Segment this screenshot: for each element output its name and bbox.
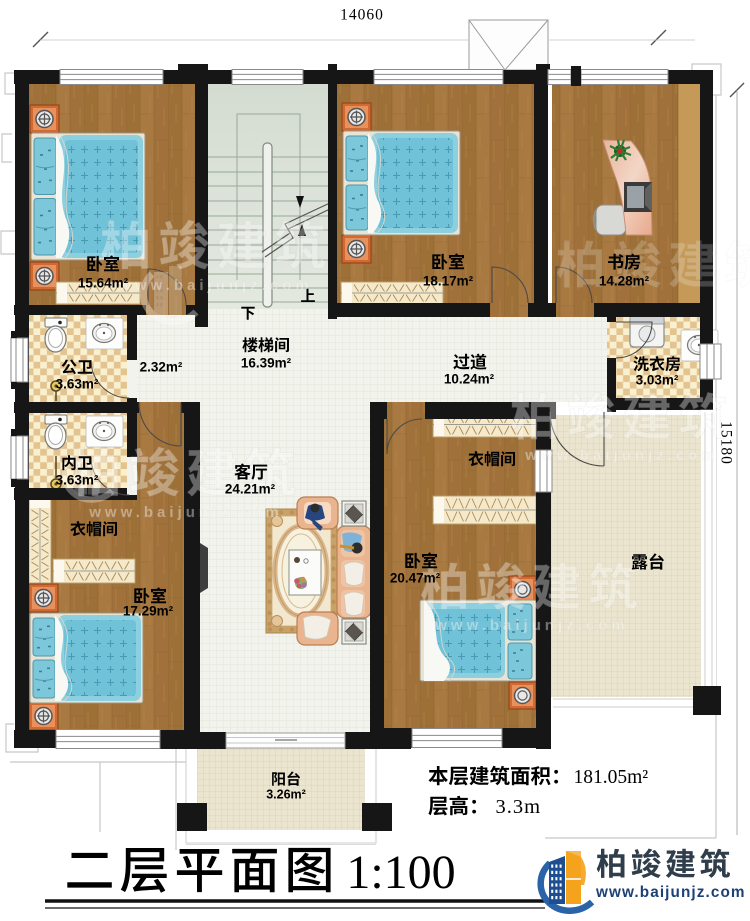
svg-text:3.3m: 3.3m: [496, 796, 542, 818]
svg-text:16.39m²: 16.39m²: [241, 356, 292, 371]
svg-text:17.29m²: 17.29m²: [123, 604, 174, 619]
svg-text:www.baijunjz.com: www.baijunjz.com: [88, 504, 282, 521]
svg-text:www.baijunjz.com: www.baijunjz.com: [118, 277, 312, 294]
svg-text:3.63m²: 3.63m²: [56, 377, 99, 392]
svg-text:18.17m²: 18.17m²: [423, 274, 474, 289]
svg-text:3.03m²: 3.03m²: [636, 373, 679, 388]
svg-text:2.32m²: 2.32m²: [140, 360, 183, 375]
svg-text:3.63m²: 3.63m²: [56, 473, 99, 488]
svg-text:14060: 14060: [340, 6, 384, 23]
svg-text:3.26m²: 3.26m²: [266, 787, 306, 801]
svg-text:1:100: 1:100: [346, 846, 455, 899]
svg-text:24.21m²: 24.21m²: [225, 482, 276, 497]
svg-text:14.28m²: 14.28m²: [599, 274, 650, 289]
svg-text:15180: 15180: [718, 421, 735, 465]
svg-text:10.24m²: 10.24m²: [444, 372, 495, 387]
svg-text:www.baijunjz.com: www.baijunjz.com: [434, 617, 628, 634]
svg-text:www.baijunjz.com: www.baijunjz.com: [524, 447, 718, 464]
svg-text:181.05m²: 181.05m²: [574, 767, 649, 788]
svg-text:www.baijunjz.com: www.baijunjz.com: [595, 884, 746, 901]
svg-text:15.64m²: 15.64m²: [78, 276, 129, 291]
svg-text:20.47m²: 20.47m²: [390, 571, 441, 586]
